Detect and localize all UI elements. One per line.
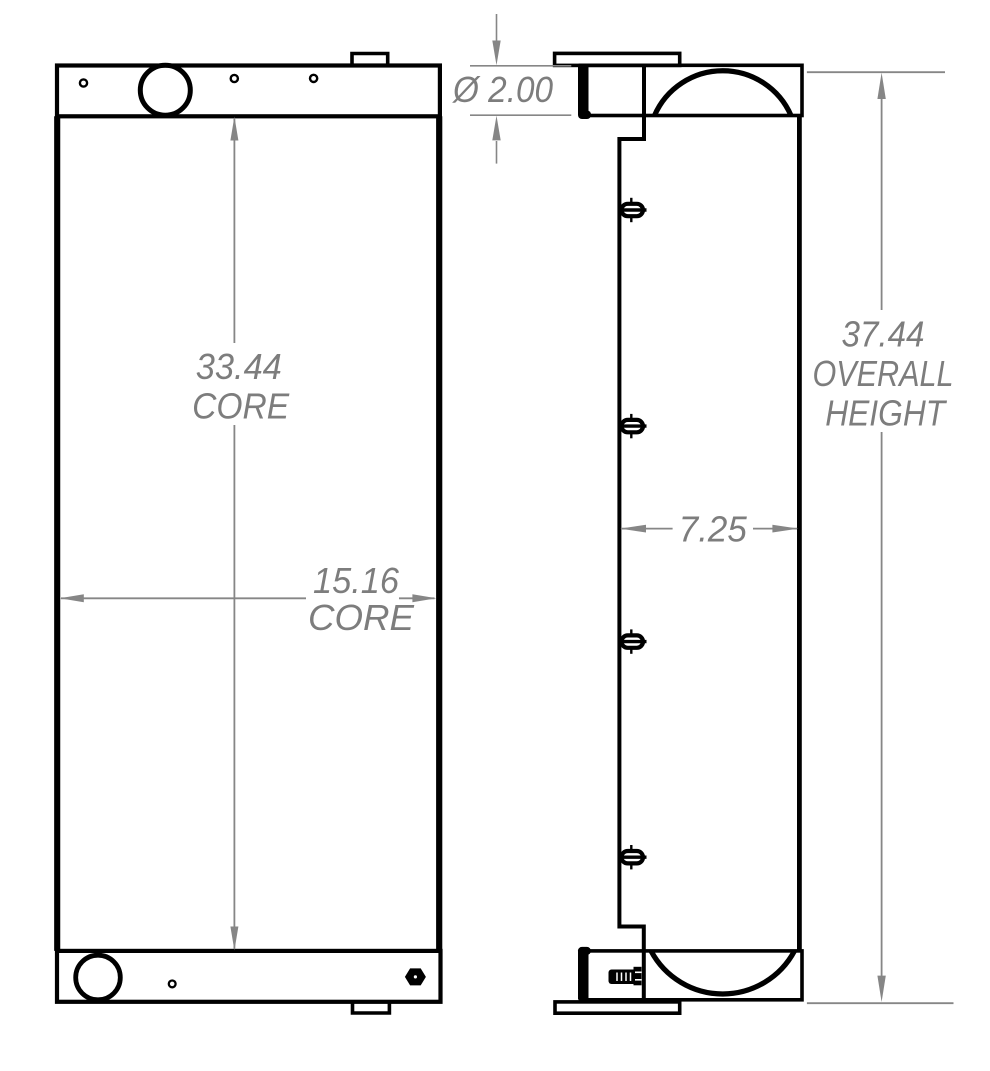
svg-text:Ø 2.00: Ø 2.00	[452, 69, 553, 110]
svg-text:33.44: 33.44	[196, 346, 282, 387]
svg-text:CORE: CORE	[308, 597, 415, 638]
svg-text:HEIGHT: HEIGHT	[825, 392, 948, 433]
svg-text:37.44: 37.44	[842, 314, 925, 355]
svg-text:7.25: 7.25	[679, 509, 748, 550]
svg-text:15.16: 15.16	[313, 560, 400, 601]
svg-text:CORE: CORE	[192, 385, 290, 426]
svg-text:OVERALL: OVERALL	[813, 353, 954, 394]
